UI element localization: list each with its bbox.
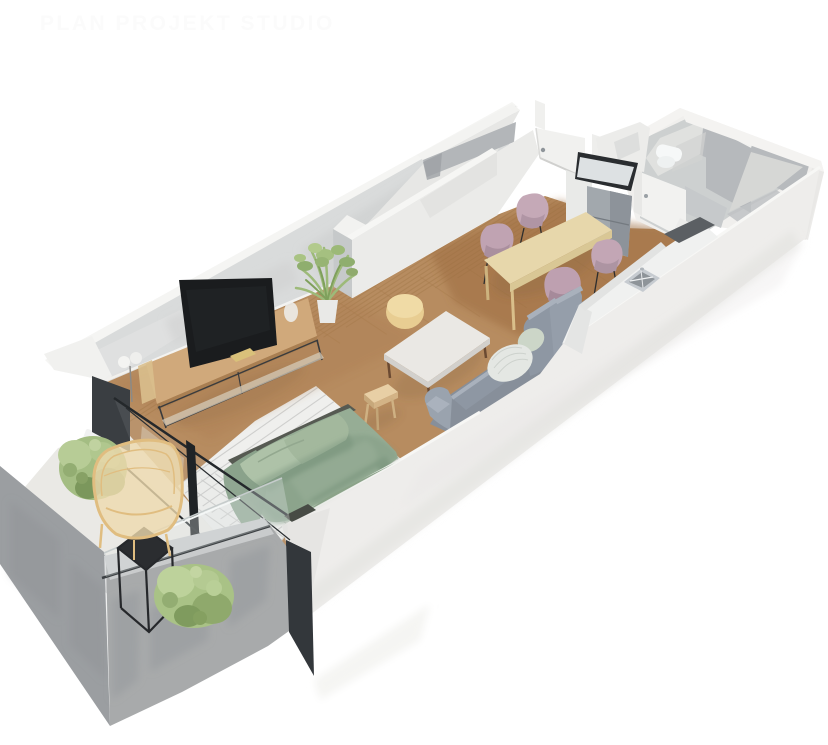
svg-text:PLAN PROJEKT STUDIO: PLAN PROJEKT STUDIO	[40, 12, 335, 35]
